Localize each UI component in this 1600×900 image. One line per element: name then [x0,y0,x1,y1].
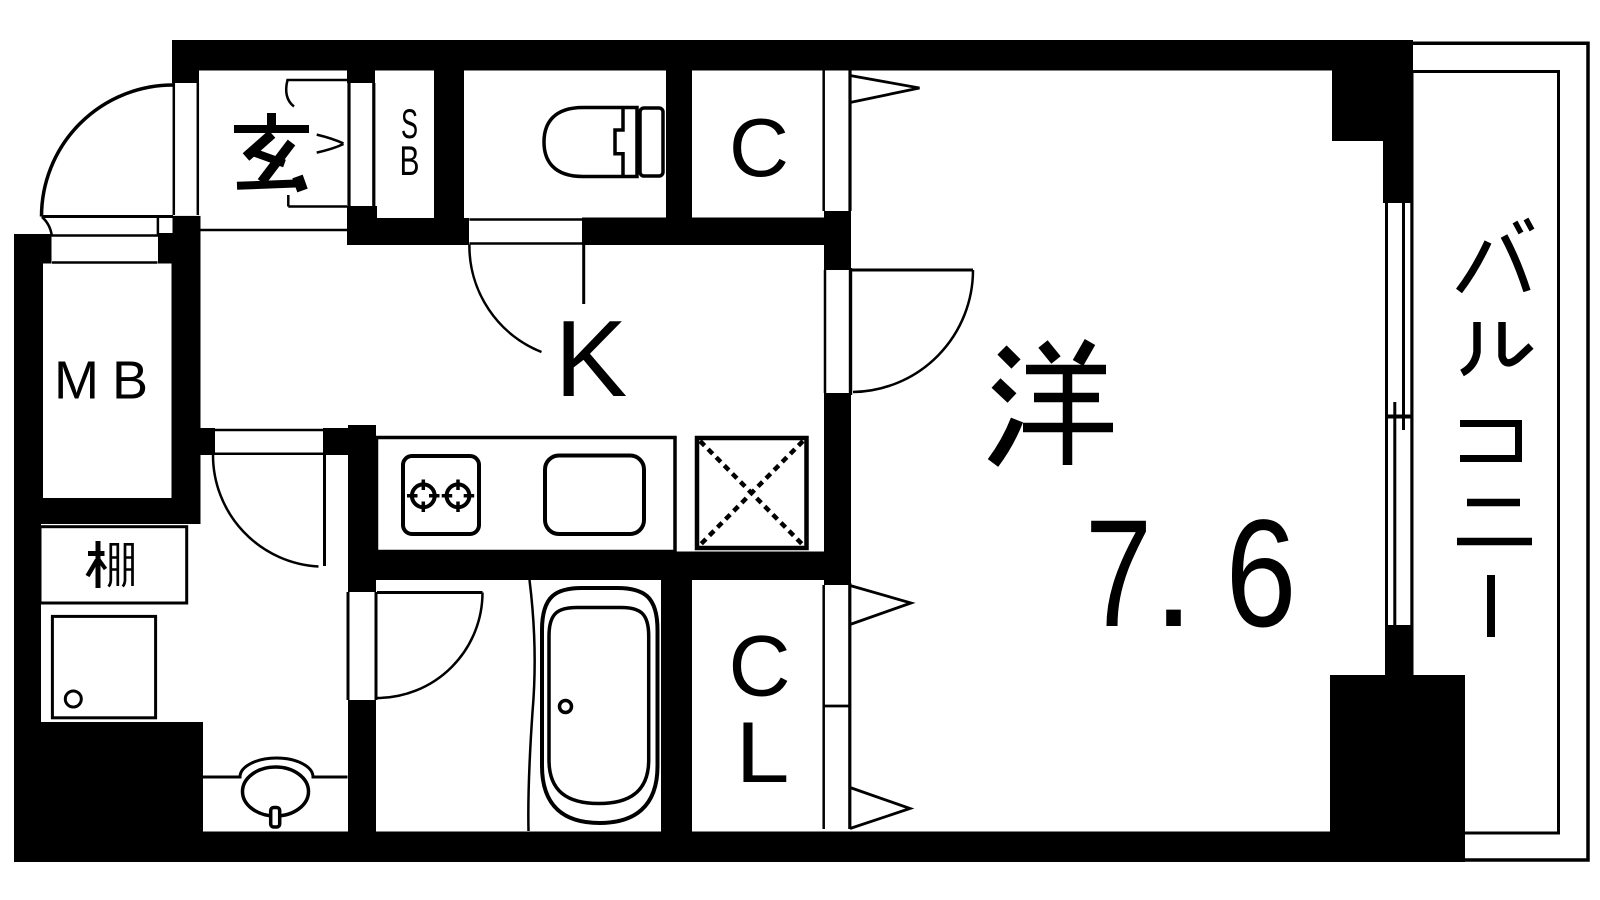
svg-text:6: 6 [1226,488,1297,659]
svg-text:C: C [728,619,790,715]
svg-text:K: K [555,298,628,420]
svg-text:7: 7 [1085,488,1152,659]
svg-text:.: . [1152,488,1195,659]
svg-text:L: L [736,705,790,801]
svg-text:C: C [729,101,789,194]
svg-text:MB: MB [54,351,161,411]
svg-text:B: B [400,137,420,184]
